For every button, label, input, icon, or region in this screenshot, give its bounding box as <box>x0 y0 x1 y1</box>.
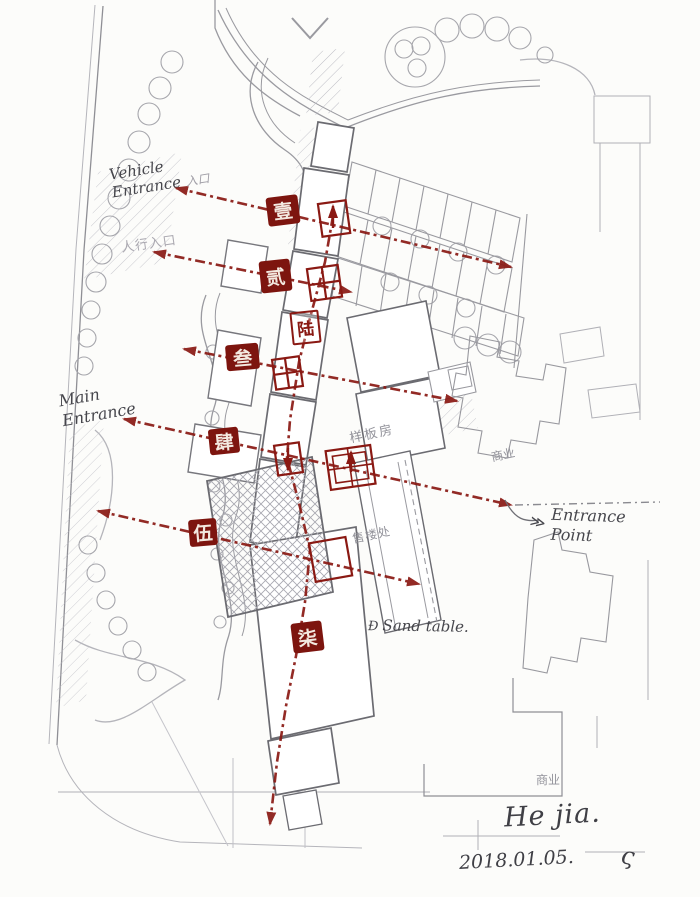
seal-six: 陆 <box>289 310 321 346</box>
entrance-point-line2: Point <box>550 524 625 546</box>
sand-table-doodle-icon: Đ <box>368 619 379 634</box>
site-plan-sheet: Vehicle Entrance 入口 人行入口 Main Entrance ≫… <box>0 0 700 897</box>
designer-signature: He jia. <box>503 797 601 835</box>
seal-five: 伍 <box>189 519 217 546</box>
site-plan-linework <box>0 0 700 897</box>
seal-one: 壹 <box>266 195 299 225</box>
commercial-label-lower: 商业 <box>536 771 560 788</box>
adjacent-plot-lines <box>560 96 650 748</box>
entrance-point-line1: Entrance <box>551 505 626 527</box>
seal-three: 叁 <box>226 344 259 371</box>
sand-table-text: Sand table. <box>382 616 469 636</box>
seal-two: 贰 <box>260 260 292 293</box>
entrance-point-label: Entrance Point <box>550 505 626 547</box>
seal-seven: 柒 <box>291 621 323 652</box>
vehicle-entrance-cjk-suffix: 入口 <box>185 172 211 190</box>
crosshatched-podium <box>207 457 333 617</box>
sand-table-label: ĐSand table. <box>368 616 469 637</box>
seal-four: 肆 <box>209 428 239 455</box>
